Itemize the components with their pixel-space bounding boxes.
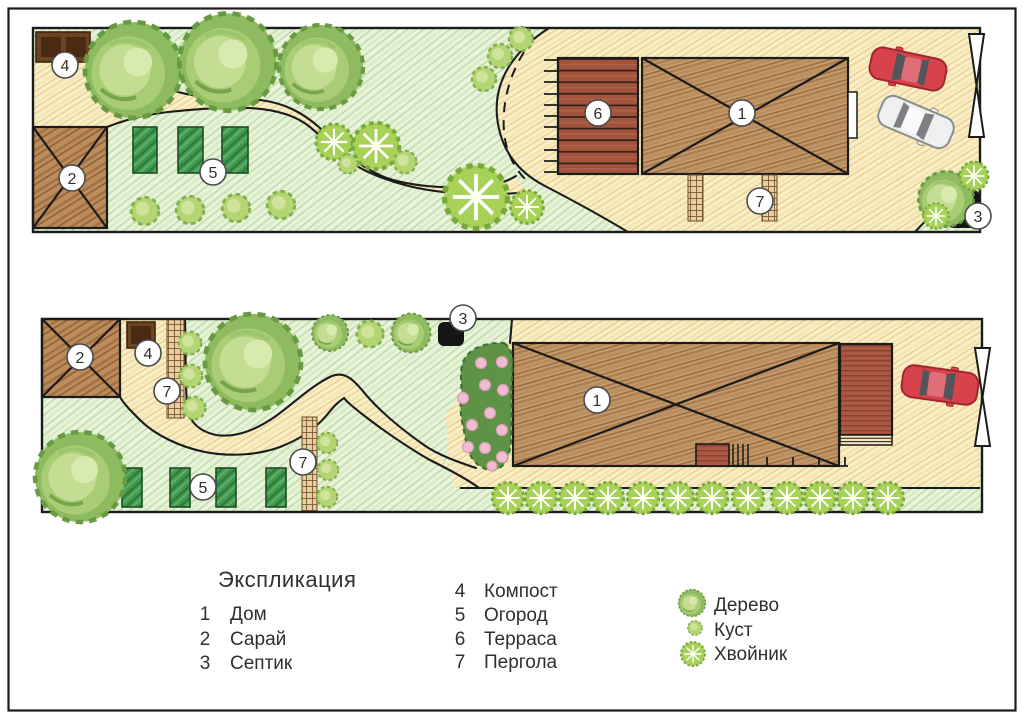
garden-bed [222, 127, 248, 173]
conifer-icon [662, 482, 694, 514]
legend-num: 3 [200, 653, 211, 674]
legend-num: 4 [455, 581, 466, 602]
bush-icon [176, 196, 204, 224]
marker-house-num: 1 [593, 393, 602, 410]
garden-beds [133, 127, 248, 173]
bush-icon [357, 321, 383, 347]
terrace-steps [840, 435, 892, 445]
page: 4 2 5 6 1 7 3 [0, 0, 1024, 720]
legend-num: 5 [455, 605, 466, 626]
marker-garden: 5 [190, 474, 216, 500]
flower-bed [458, 343, 513, 471]
bush-icon [131, 197, 159, 225]
marker-garden-num: 5 [209, 165, 218, 182]
house [513, 343, 839, 466]
conifer-icon [681, 642, 705, 666]
bush-icon [222, 194, 250, 222]
bush-icon [267, 191, 295, 219]
marker-house: 1 [584, 387, 610, 413]
marker-pergola-bottom: 7 [290, 449, 316, 475]
conifer-icon [492, 482, 524, 514]
garden-bed [216, 468, 236, 507]
conifer-icon [592, 482, 624, 514]
tree-icon [205, 314, 301, 410]
plan-variant-2: 2 4 7 3 1 7 5 [35, 305, 990, 522]
bush-icon [394, 151, 417, 174]
house-entry [848, 92, 857, 138]
legend-symbol-label: Хвойник [714, 644, 788, 665]
legend-title: Экспликация [218, 567, 356, 592]
bush-icon [180, 365, 203, 388]
marker-pergola-num: 7 [163, 384, 172, 401]
marker-septic-num: 3 [974, 209, 983, 226]
conifer-icon [525, 482, 557, 514]
tree-icon [35, 432, 125, 522]
marker-septic: 3 [450, 305, 476, 331]
conifer-icon [445, 166, 508, 229]
conifer-icon [960, 162, 989, 191]
marker-shed-num: 2 [68, 171, 77, 188]
conifer-icon [732, 482, 764, 514]
marker-house-num: 1 [738, 106, 747, 123]
garden-bed [133, 127, 157, 173]
marker-compost-num: 4 [144, 346, 153, 363]
legend-label: Септик [230, 653, 293, 674]
marker-compost-num: 4 [61, 58, 70, 75]
marker-pergola: 7 [747, 188, 773, 214]
legend-label: Дом [230, 604, 267, 625]
bush-icon [338, 154, 357, 173]
garden-bed [122, 468, 142, 507]
legend-num: 2 [200, 629, 211, 650]
marker-septic-num: 3 [459, 311, 468, 328]
marker-septic: 3 [965, 203, 991, 229]
garden-bed [178, 127, 203, 173]
terrace [840, 344, 892, 445]
bush-icon [179, 332, 202, 355]
conifer-icon [837, 482, 869, 514]
conifer-icon [696, 482, 728, 514]
marker-garden-num: 5 [199, 480, 208, 497]
marker-terrace-num: 6 [594, 106, 603, 123]
marker-pergola-num: 7 [299, 455, 308, 472]
bush-icon [488, 44, 512, 68]
legend-label: Компост [484, 581, 558, 602]
marker-compost: 4 [135, 340, 161, 366]
bush-icon [472, 67, 496, 91]
conifer-icon [627, 482, 659, 514]
conifer-icon [559, 482, 591, 514]
bush-icon [317, 487, 337, 507]
legend-num: 7 [455, 652, 466, 673]
conifer-icon [353, 123, 400, 170]
legend-label: Пергола [484, 652, 558, 673]
bush-icon [688, 621, 702, 635]
garden-bed [170, 468, 190, 507]
marker-garden: 5 [200, 159, 226, 185]
legend-symbol-label: Дерево [714, 595, 779, 616]
legend-num: 6 [455, 629, 466, 650]
legend-label: Огород [484, 605, 548, 626]
marker-pergola-num: 7 [756, 194, 765, 211]
bush-icon [318, 460, 338, 480]
bush-icon [183, 397, 206, 420]
garden-bed [266, 468, 286, 507]
tree-icon [279, 25, 363, 109]
bush-icon [509, 27, 533, 51]
legend-label: Сарай [230, 629, 286, 650]
plan-variant-1: 4 2 5 6 1 7 3 [33, 13, 991, 232]
tree-icon [312, 315, 348, 351]
conifer-icon [804, 482, 836, 514]
marker-shed: 2 [59, 165, 85, 191]
site-plan-canvas: 4 2 5 6 1 7 3 [0, 0, 1024, 720]
marker-shed-num: 2 [76, 350, 85, 367]
marker-pergola-top: 7 [154, 378, 180, 404]
legend-label: Терраса [484, 629, 557, 650]
tree-icon [392, 314, 431, 353]
marker-terrace: 6 [585, 100, 611, 126]
marker-house: 1 [729, 100, 755, 126]
conifer-icon [511, 191, 544, 224]
tree-icon [179, 13, 276, 110]
tree-icon [679, 590, 706, 617]
legend-num: 1 [200, 604, 211, 625]
pergola-post [688, 175, 703, 221]
conifer-icon [771, 482, 803, 514]
legend-symbol-label: Куст [714, 620, 753, 641]
tree-icon [85, 22, 181, 118]
bush-icon [317, 433, 337, 453]
conifer-icon [872, 482, 904, 514]
conifer-icon [923, 203, 949, 229]
marker-shed: 2 [67, 344, 93, 370]
marker-compost: 4 [52, 52, 78, 78]
